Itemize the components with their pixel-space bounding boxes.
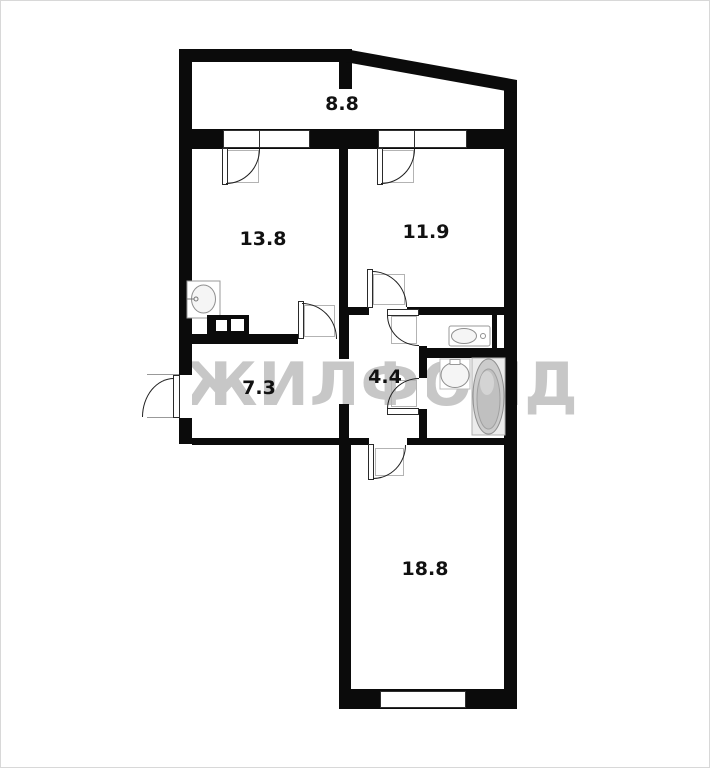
wall-living-west <box>339 445 351 709</box>
wall-kitchen-bedroom-divider <box>339 149 348 316</box>
stove-icon <box>207 315 249 335</box>
room-area-label-hallway: 7.3 <box>234 378 284 398</box>
stove-burner <box>216 320 227 331</box>
wall-kitchen-south <box>192 334 298 344</box>
entrance-door-leaf <box>173 375 180 418</box>
entrance-door-opening <box>179 375 192 418</box>
toilet-icon <box>449 326 490 346</box>
living-room-window <box>380 691 466 708</box>
bathroom-door-opening <box>419 378 427 409</box>
room-area-label-corridor: 4.4 <box>360 367 410 387</box>
floor-plan: ЖИЛФОНД <box>0 0 710 768</box>
bathroom-door-leaf <box>387 408 419 415</box>
room-area-label-living-room: 18.8 <box>390 559 460 579</box>
wc-door-opening <box>419 315 427 346</box>
wall-balcony-diagonal <box>345 49 517 93</box>
living-room-door-opening <box>369 438 407 445</box>
stove-burner <box>231 319 244 331</box>
wall-exterior-right <box>504 80 517 709</box>
balcony-unit-right-window <box>378 130 467 148</box>
wall-main-horizontal <box>192 438 504 445</box>
wall-mid-upper <box>339 315 349 359</box>
wall-wc-east-thin <box>492 315 497 348</box>
wall-exterior-top <box>179 49 352 62</box>
room-area-label-balcony: 8.8 <box>317 94 367 114</box>
wall-wc-bath-divider <box>427 348 504 358</box>
window-divider <box>259 131 260 147</box>
window-divider <box>414 131 415 147</box>
entrance-door-arc <box>142 378 174 417</box>
balcony-unit-left-window <box>223 130 310 148</box>
wall-balcony-stub <box>339 49 352 89</box>
room-area-label-kitchen: 13.8 <box>228 229 298 249</box>
room-area-label-bedroom: 11.9 <box>391 222 461 242</box>
